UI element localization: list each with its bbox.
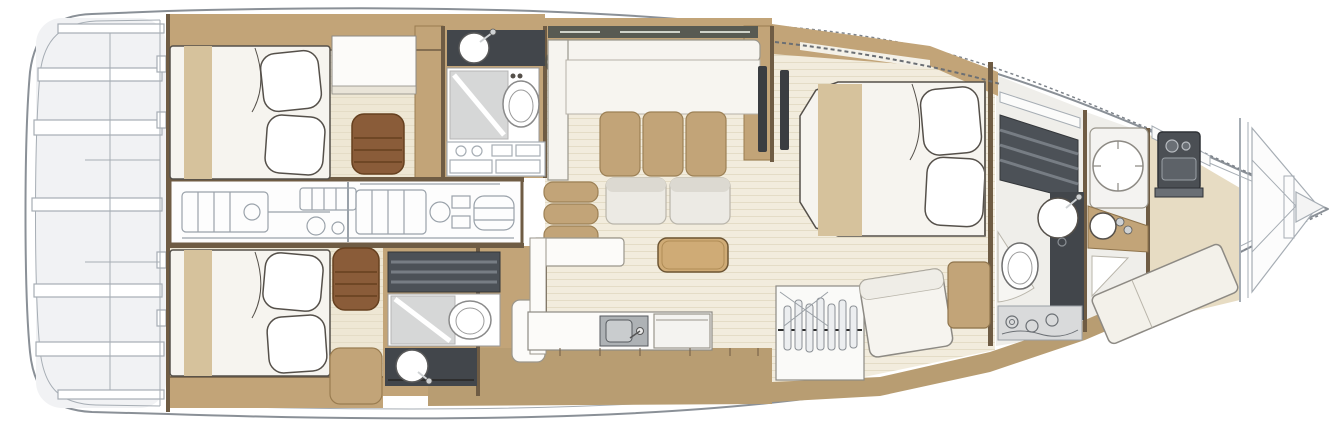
- stern-step: [32, 198, 162, 211]
- faucet-knob: [1116, 218, 1124, 226]
- galley-sink: [600, 316, 648, 346]
- stern-hinge: [157, 112, 166, 128]
- stern-step: [38, 68, 162, 81]
- leather-pouf: [352, 114, 404, 174]
- engine-room: [170, 180, 522, 244]
- bed-runner: [184, 250, 212, 376]
- shower-control: [518, 74, 523, 79]
- corner-cabinet: [330, 348, 382, 404]
- bed-runner: [818, 84, 862, 236]
- stern-step: [34, 120, 162, 135]
- toilet: [449, 301, 491, 339]
- bed-runner: [184, 46, 212, 179]
- drawer-pouf: [333, 248, 379, 310]
- sofa-back: [548, 40, 760, 62]
- wall: [770, 26, 774, 162]
- lounge-chair: [606, 178, 666, 224]
- swim-platform: [32, 18, 166, 408]
- bow: [1240, 118, 1324, 302]
- aft-head-port: [447, 29, 545, 176]
- hanging-wardrobe: [776, 286, 864, 380]
- tv-panel: [780, 70, 789, 150]
- bilge-lineart: [998, 306, 1082, 340]
- stern-hinge: [157, 56, 166, 72]
- bench-seat: [544, 182, 598, 246]
- slatted-locker: [388, 252, 500, 292]
- sofa-back-cushion: [686, 112, 726, 176]
- stern-step: [58, 390, 164, 399]
- bed-pillow: [259, 49, 323, 113]
- bed-pillow: [919, 86, 983, 157]
- chaise-seat: [859, 268, 954, 358]
- utility-counter-lineart: [447, 142, 545, 176]
- lounge-chair: [670, 178, 730, 224]
- bed-pillow: [262, 252, 325, 313]
- bed-pillow: [264, 114, 326, 176]
- toilet: [503, 81, 539, 127]
- stern-step: [36, 342, 164, 356]
- bed-pillow: [266, 314, 328, 374]
- side-cabinet: [948, 262, 990, 328]
- galley-appliance: [654, 314, 710, 348]
- shower-control: [511, 74, 516, 79]
- faucet-knob: [426, 378, 432, 384]
- faucet-knob: [1124, 226, 1132, 234]
- faucet-knob: [490, 29, 496, 35]
- washbasin: [1090, 213, 1116, 239]
- bed-pillow: [924, 157, 985, 228]
- stern-hinge: [157, 252, 166, 268]
- stern-step: [58, 24, 164, 33]
- sofa-arm: [548, 40, 568, 180]
- wall: [441, 26, 445, 178]
- tv-panel: [758, 66, 767, 152]
- anchor-windlass: [1155, 132, 1203, 197]
- faucet-knob: [1076, 194, 1082, 200]
- desk: [332, 36, 416, 92]
- stern-step: [34, 284, 162, 297]
- yacht-floor-plan: [0, 0, 1344, 427]
- engine-room-bay: [170, 180, 522, 244]
- cabinet-column: [415, 26, 443, 180]
- sofa-platform: [566, 60, 760, 114]
- desk-edge: [332, 86, 416, 94]
- stern-hinge: [157, 310, 166, 326]
- sofa-back-cushion: [643, 112, 683, 176]
- sofa-back-cushion: [600, 112, 640, 176]
- coffee-table: [658, 238, 728, 272]
- toilet: [1002, 243, 1038, 289]
